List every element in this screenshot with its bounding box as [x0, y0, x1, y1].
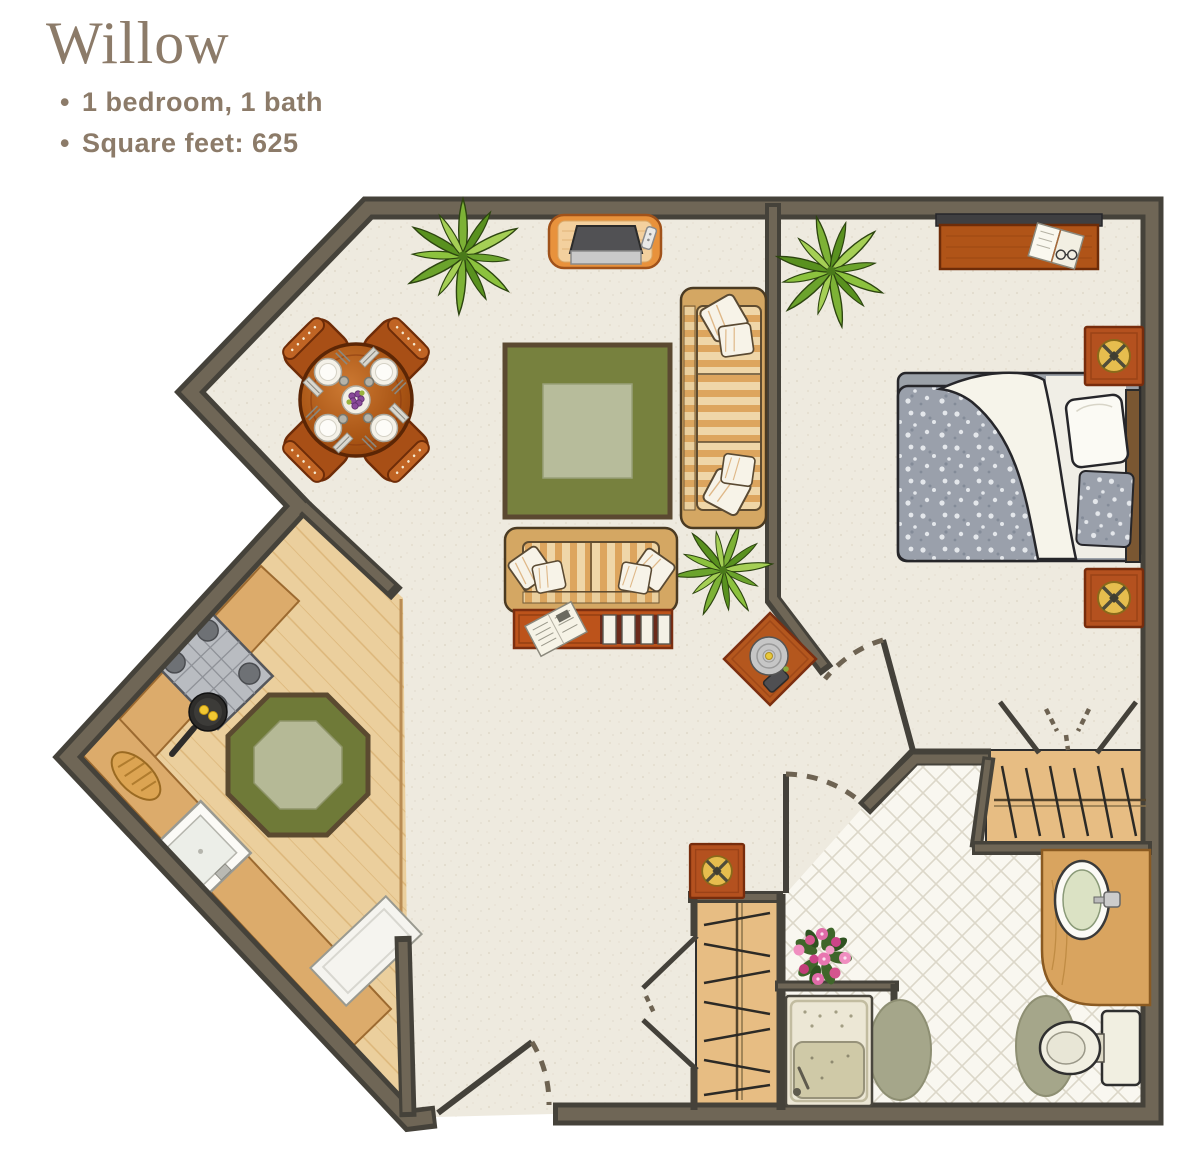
- square-area-rug: [505, 345, 670, 517]
- octagon-rug: [228, 695, 368, 835]
- shower-seat: [794, 1042, 864, 1098]
- hallway-accent-table: [690, 844, 744, 898]
- center-fruit-plate: [342, 386, 370, 414]
- white-pillow: [1065, 394, 1129, 468]
- floor-plan-illustration: [0, 0, 1200, 1153]
- walk-in-shower: [786, 996, 872, 1106]
- bullet-icon: •: [60, 128, 70, 158]
- dresser: [936, 214, 1102, 269]
- faucet: [1104, 892, 1120, 907]
- plan-header: Willow •1 bedroom, 1 bath •Square feet: …: [46, 10, 323, 163]
- tv-stand: [549, 215, 661, 268]
- magazines: [600, 615, 672, 644]
- bullet-icon: •: [60, 87, 70, 117]
- coffee-table: [514, 602, 672, 656]
- detail-bedrooms-baths: •1 bedroom, 1 bath: [60, 82, 323, 123]
- bath-mat: [869, 1000, 931, 1100]
- striped-sofa: [681, 288, 766, 528]
- plan-details: •1 bedroom, 1 bath •Square feet: 625: [60, 82, 323, 163]
- loveseat-pillow: [532, 560, 567, 594]
- loveseat-pillow: [618, 562, 652, 595]
- plan-title: Willow: [46, 10, 323, 76]
- television: [570, 226, 642, 253]
- sofa-pillow: [721, 453, 756, 487]
- vanity-with-sink: [1042, 850, 1150, 1005]
- sofa-pillow: [718, 323, 754, 358]
- striped-loveseat: [505, 528, 677, 612]
- nightstand-top: [1085, 327, 1143, 385]
- entry-closet-floor: [696, 897, 783, 1112]
- nightstand-bottom: [1085, 569, 1143, 627]
- bed: [898, 373, 1140, 562]
- patterned-pillow: [1076, 471, 1134, 548]
- detail-square-feet: •Square feet: 625: [60, 123, 323, 164]
